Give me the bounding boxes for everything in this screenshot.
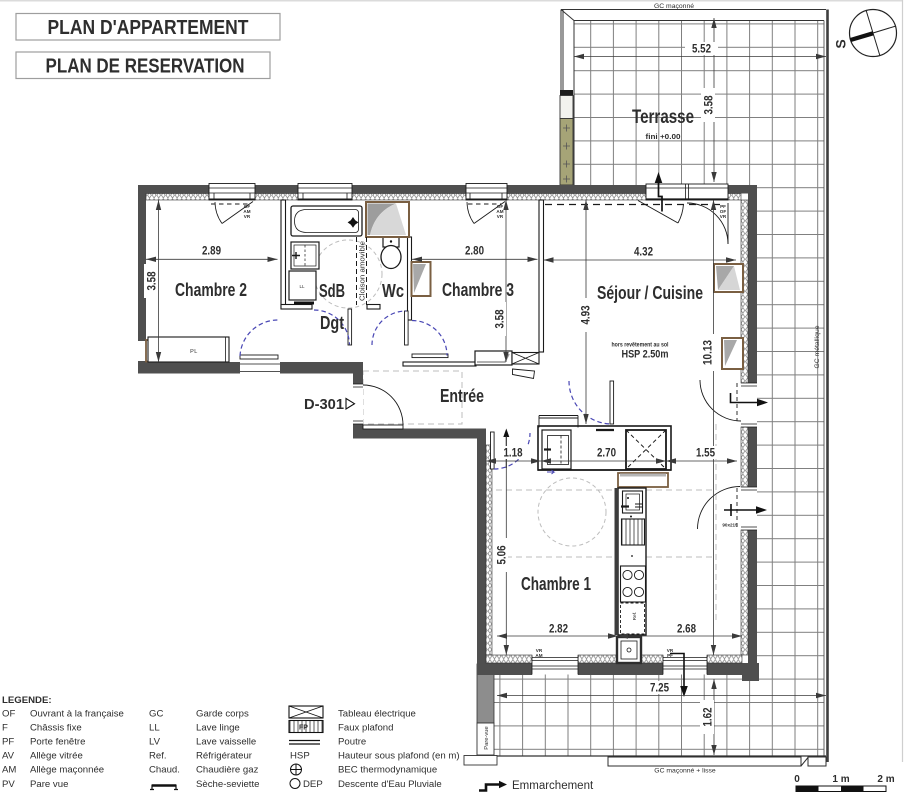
svg-text:PLAN D'APPARTEMENT: PLAN D'APPARTEMENT <box>48 16 249 39</box>
svg-text:Emmarchement: Emmarchement <box>512 780 594 792</box>
svg-text:2.80: 2.80 <box>465 244 484 258</box>
svg-text:Pare vue: Pare vue <box>30 779 68 790</box>
svg-text:HSP 2.50m: HSP 2.50m <box>622 349 669 361</box>
svg-text:1.62: 1.62 <box>701 707 715 726</box>
svg-text:1.18: 1.18 <box>504 446 523 460</box>
svg-text:Pare-vue: Pare-vue <box>484 726 490 750</box>
svg-text:LV: LV <box>149 737 161 748</box>
svg-text:10.13: 10.13 <box>701 340 715 365</box>
svg-text:Chaud.: Chaud. <box>149 765 180 776</box>
svg-text:LL: LL <box>299 284 305 289</box>
svg-text:Ref.: Ref. <box>149 751 167 762</box>
svg-text:Poutre: Poutre <box>338 737 366 748</box>
svg-text:Porte fenêtre: Porte fenêtre <box>30 737 85 748</box>
svg-text:2 m: 2 m <box>877 774 894 785</box>
svg-text:4.93: 4.93 <box>579 305 593 324</box>
svg-text:PF: PF <box>667 653 673 658</box>
svg-text:LL: LL <box>149 723 160 734</box>
svg-text:GC maçonné + lisse: GC maçonné + lisse <box>654 768 716 775</box>
svg-text:D-301: D-301 <box>304 397 344 413</box>
svg-text:Lave linge: Lave linge <box>196 723 240 734</box>
svg-text:7.25: 7.25 <box>650 681 669 695</box>
svg-text:Terrasse: Terrasse <box>632 106 694 128</box>
svg-text:SdB: SdB <box>319 281 345 301</box>
svg-text:5.06: 5.06 <box>495 545 509 564</box>
svg-text:GC métallique: GC métallique <box>814 325 821 368</box>
svg-text:PF: PF <box>2 737 14 748</box>
svg-text:hors revêtement au sol: hors revêtement au sol <box>612 342 669 349</box>
svg-text:Descente d'Eau Pluviale: Descente d'Eau Pluviale <box>338 779 442 790</box>
svg-text:PL: PL <box>190 349 198 355</box>
svg-text:GC: GC <box>149 709 163 720</box>
svg-text:Chambre 1: Chambre 1 <box>521 573 591 594</box>
svg-text:Ref.: Ref. <box>632 612 638 621</box>
svg-text:Tableau électrique: Tableau électrique <box>338 709 416 720</box>
svg-text:Cloison amovible: Cloison amovible <box>360 241 367 301</box>
svg-text:AM: AM <box>535 653 542 658</box>
svg-text:Châssis fixe: Châssis fixe <box>30 723 82 734</box>
svg-text:PV: PV <box>2 779 15 790</box>
svg-text:F: F <box>2 723 8 734</box>
svg-text:90x215: 90x215 <box>722 523 738 528</box>
svg-text:2.82: 2.82 <box>549 622 568 636</box>
svg-text:5.52: 5.52 <box>692 42 711 56</box>
svg-text:2.89: 2.89 <box>202 244 221 258</box>
svg-text:HSP: HSP <box>290 751 310 762</box>
svg-text:Lave vaisselle: Lave vaisselle <box>196 737 256 748</box>
svg-text:1.55: 1.55 <box>696 446 715 460</box>
svg-text:VR: VR <box>720 214 727 219</box>
svg-text:Entrée: Entrée <box>440 386 484 406</box>
svg-text:0: 0 <box>794 774 800 785</box>
svg-text:3.58: 3.58 <box>493 309 507 328</box>
svg-text:Wc: Wc <box>382 281 404 301</box>
svg-text:fini +0.00: fini +0.00 <box>646 132 681 141</box>
svg-text:Dgt: Dgt <box>320 313 344 333</box>
svg-text:Sèche-seviette: Sèche-seviette <box>196 779 259 790</box>
svg-text:Faux plafond: Faux plafond <box>338 723 393 734</box>
svg-text:AM: AM <box>2 765 16 776</box>
svg-text:3.58: 3.58 <box>702 95 716 114</box>
svg-text:Garde corps: Garde corps <box>196 709 249 720</box>
svg-text:FP: FP <box>299 725 308 732</box>
svg-text:OF: OF <box>2 709 15 720</box>
svg-text:1 m: 1 m <box>832 774 849 785</box>
svg-text:Chambre 2: Chambre 2 <box>175 279 247 300</box>
svg-text:VR: VR <box>244 214 251 219</box>
svg-text:2.68: 2.68 <box>677 622 696 636</box>
svg-text:3.58: 3.58 <box>145 271 159 290</box>
svg-text:PLAN DE RESERVATION: PLAN DE RESERVATION <box>46 55 245 78</box>
svg-text:S: S <box>833 39 849 48</box>
svg-text:Chambre 3: Chambre 3 <box>442 279 514 300</box>
svg-text:4.32: 4.32 <box>634 245 653 259</box>
svg-text:Hauteur sous plafond (en m): Hauteur sous plafond (en m) <box>338 751 460 762</box>
svg-text:Allège maçonnée: Allège maçonnée <box>30 765 104 776</box>
svg-text:Allège vitrée: Allège vitrée <box>30 751 83 762</box>
svg-text:Ouvrant à la française: Ouvrant à la française <box>30 709 124 720</box>
svg-text:BEC thermodynamique: BEC thermodynamique <box>338 765 437 776</box>
svg-text:Réfrigérateur: Réfrigérateur <box>196 751 253 762</box>
svg-text:Séjour / Cuisine: Séjour / Cuisine <box>597 283 703 303</box>
svg-text:VR: VR <box>497 214 504 219</box>
svg-text:AV: AV <box>2 751 15 762</box>
svg-text:DEP: DEP <box>303 779 323 790</box>
svg-text:GC maçonné: GC maçonné <box>654 3 694 10</box>
svg-text:LEGENDE:: LEGENDE: <box>2 695 52 706</box>
svg-text:2.70: 2.70 <box>597 446 616 460</box>
svg-text:Chaudière gaz: Chaudière gaz <box>196 765 259 776</box>
